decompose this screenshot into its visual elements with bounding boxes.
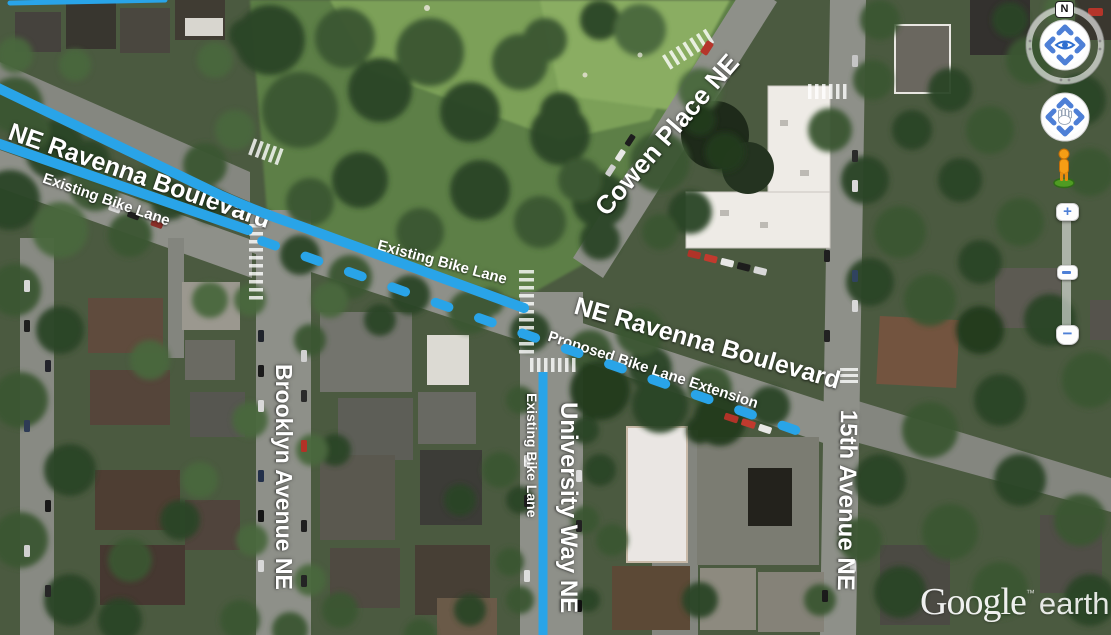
trademark-symbol: ™	[1026, 588, 1035, 598]
existing-bike-lane-line-north	[0, 86, 524, 308]
bike-lane-overlay	[0, 0, 1111, 635]
north-indicator[interactable]: N	[1055, 1, 1074, 18]
earth-logo-text: earth	[1039, 586, 1110, 621]
zoom-out-button[interactable]: −	[1056, 325, 1079, 345]
proposed-bike-lane-dashed-line	[262, 241, 812, 436]
google-earth-watermark: Google™earth	[920, 580, 1110, 624]
google-earth-viewport[interactable]: NE Ravenna Boulevard Existing Bike Lane …	[0, 0, 1111, 635]
existing-bike-lane-line-top-edge	[10, 0, 165, 3]
google-logo: Google	[920, 581, 1026, 623]
zoom-in-button[interactable]: +	[1056, 203, 1079, 221]
zoom-slider-handle[interactable]	[1057, 265, 1078, 280]
